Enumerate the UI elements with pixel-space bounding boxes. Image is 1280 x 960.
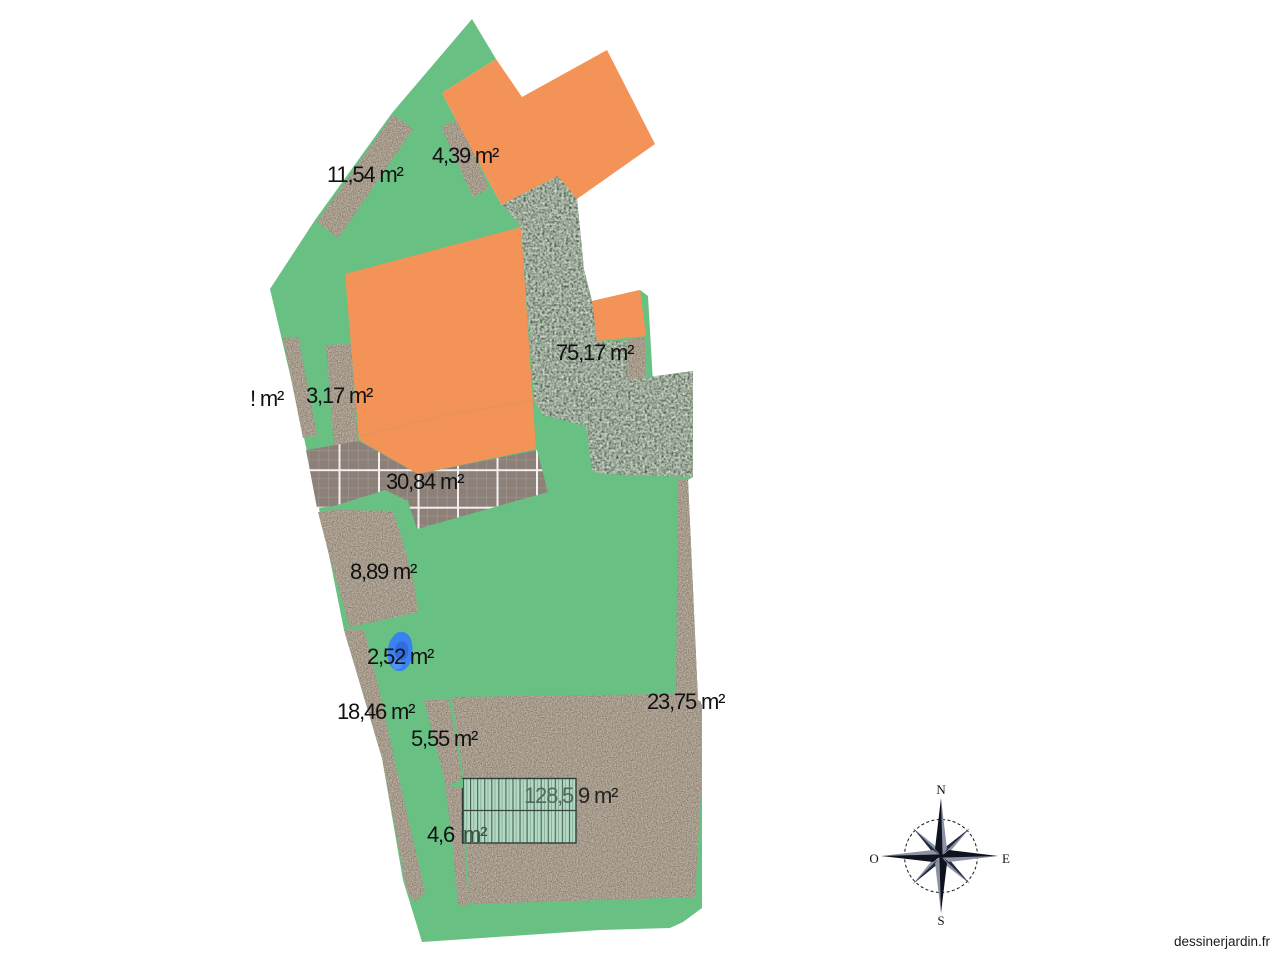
svg-text:11,54 m²: 11,54 m² [327, 162, 403, 187]
svg-text:N: N [936, 782, 946, 797]
svg-text:23,75 m²: 23,75 m² [647, 689, 725, 714]
svg-text:S: S [937, 913, 944, 928]
svg-text:8,89 m²: 8,89 m² [350, 559, 417, 584]
svg-text:dessinerjardin.fr: dessinerjardin.fr [1174, 934, 1271, 949]
svg-text:128,5: 128,5 [524, 783, 574, 808]
svg-text:5,55 m²: 5,55 m² [411, 726, 478, 751]
svg-text:9 m²: 9 m² [578, 783, 618, 808]
svg-text:2,52 m²: 2,52 m² [367, 644, 434, 669]
svg-text:E: E [1002, 851, 1010, 866]
svg-text:75,17 m²: 75,17 m² [556, 340, 634, 365]
svg-text:! m²: ! m² [250, 386, 284, 411]
svg-text:30,84 m²: 30,84 m² [386, 469, 464, 494]
svg-text:O: O [869, 851, 878, 866]
svg-text:18,46 m²: 18,46 m² [337, 699, 415, 724]
svg-text:3,17 m²: 3,17 m² [306, 383, 373, 408]
svg-text:4,39 m²: 4,39 m² [432, 143, 499, 168]
svg-text:4,6: 4,6 [427, 822, 455, 847]
svg-text:m²: m² [463, 822, 487, 847]
